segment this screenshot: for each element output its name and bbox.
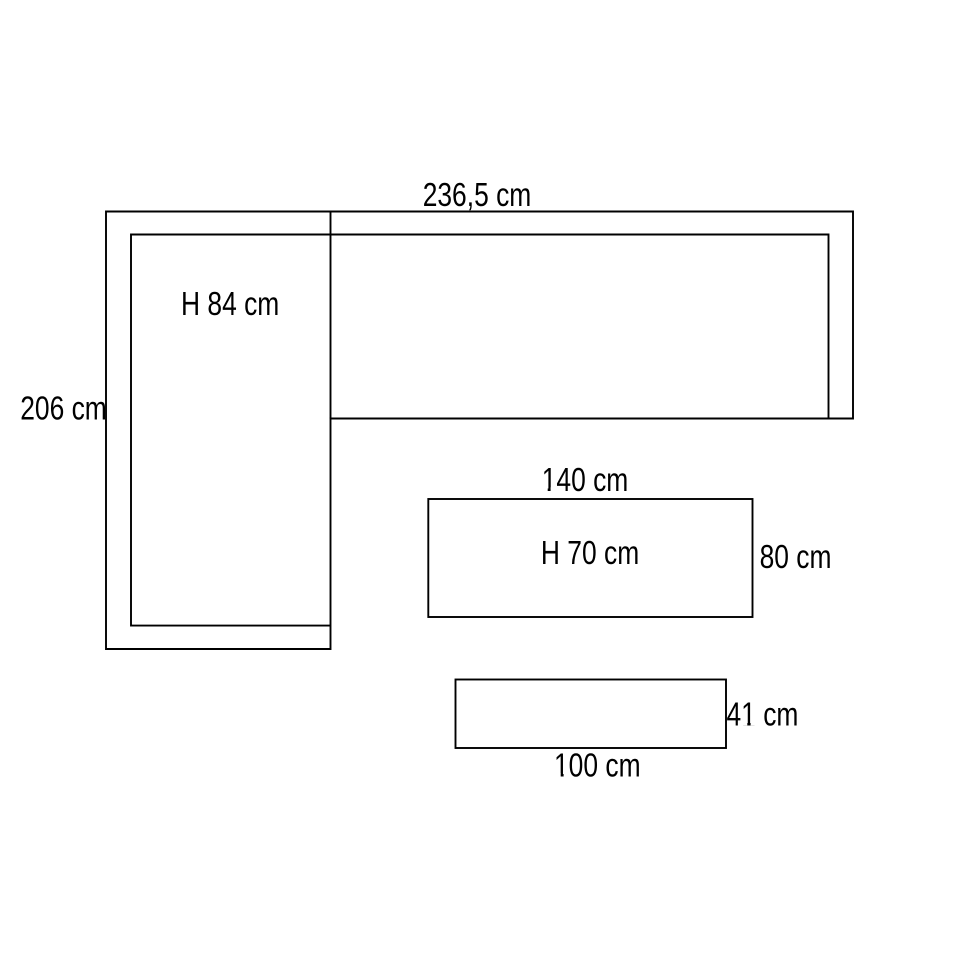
svg-text:206 cm: 206 cm bbox=[20, 390, 107, 427]
svg-text:140 cm: 140 cm bbox=[542, 461, 629, 498]
svg-text:H 70 cm: H 70 cm bbox=[541, 534, 639, 571]
svg-text:80 cm: 80 cm bbox=[760, 538, 832, 575]
svg-text:H 84 cm: H 84 cm bbox=[181, 285, 279, 322]
svg-text:100 cm: 100 cm bbox=[554, 747, 641, 784]
svg-text:236,5 cm: 236,5 cm bbox=[423, 176, 532, 213]
svg-text:41 cm: 41 cm bbox=[727, 695, 799, 732]
